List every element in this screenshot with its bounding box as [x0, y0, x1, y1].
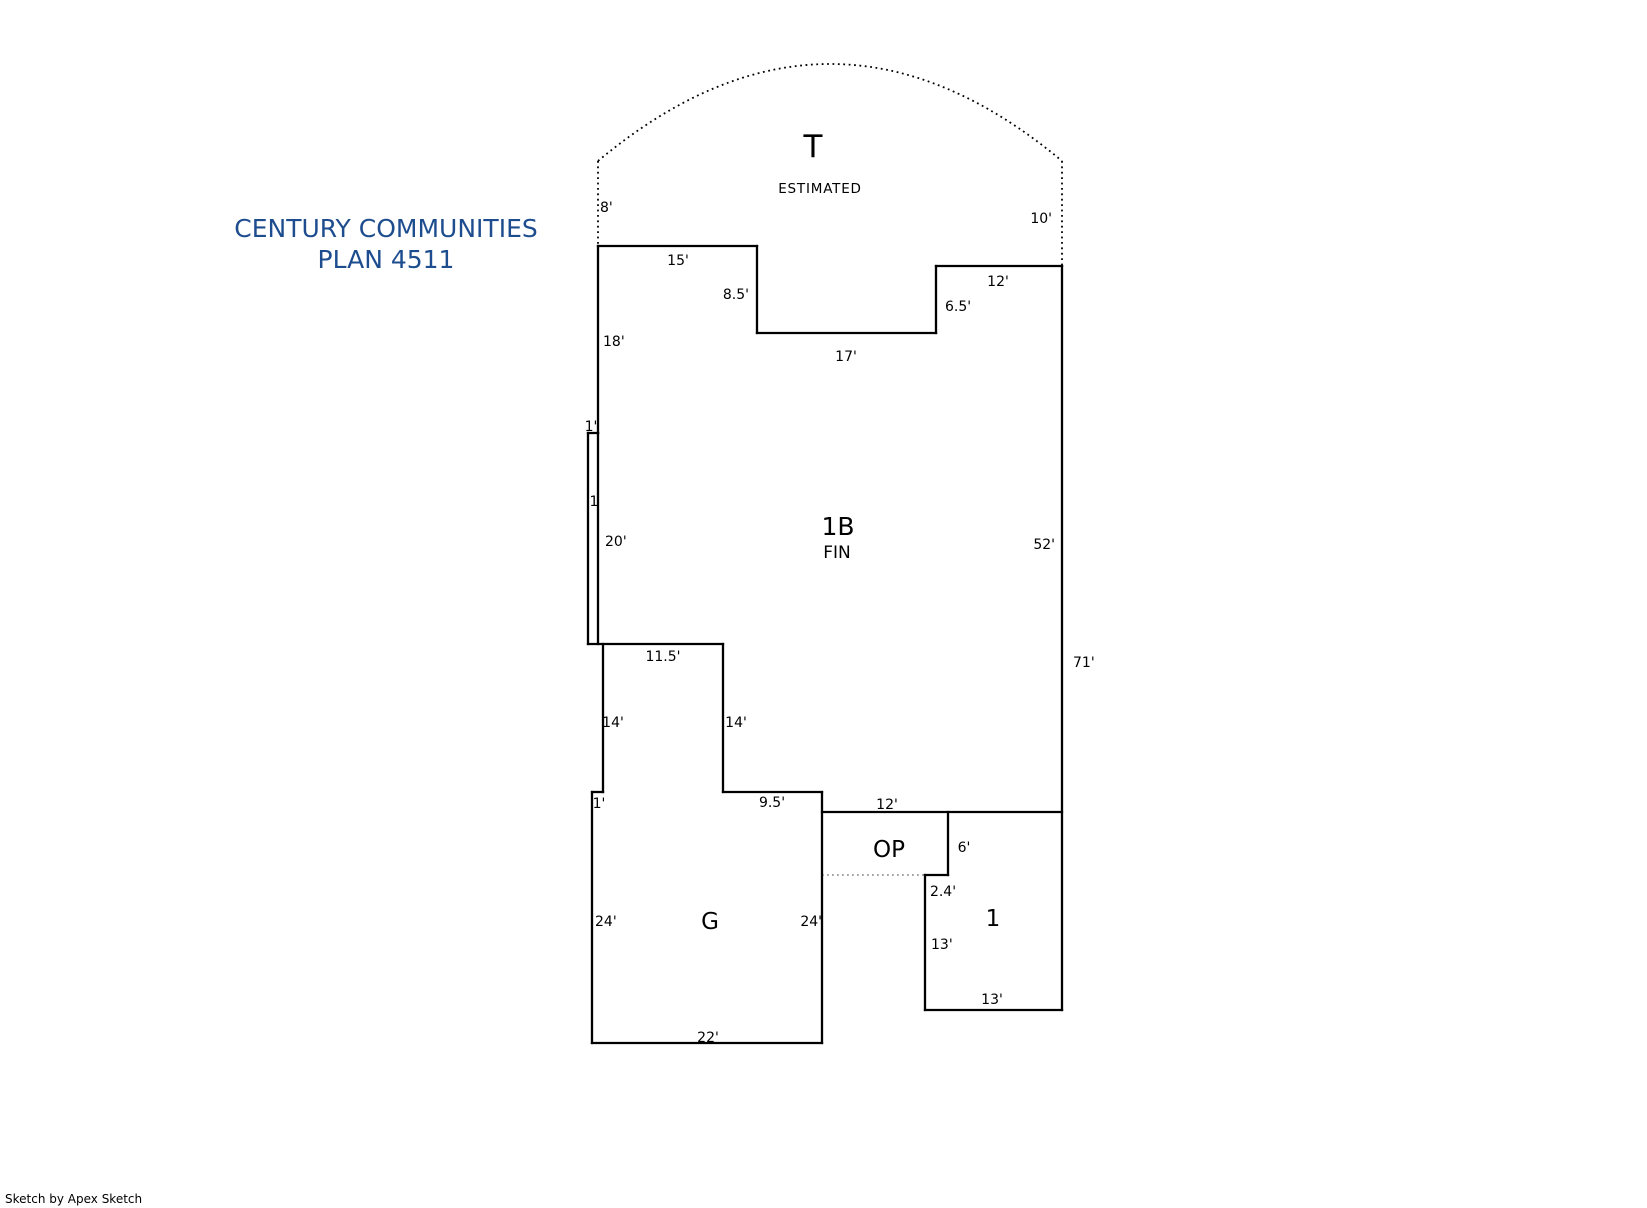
dimension-label: 8.5' — [723, 287, 749, 303]
dimension-label: 14' — [602, 715, 624, 731]
dimension-label: 15' — [667, 253, 689, 269]
dimension-label: 1 — [590, 494, 599, 510]
dimension-label: 13' — [931, 937, 953, 953]
dimension-label: 6' — [958, 840, 971, 856]
dimension-label: 13' — [981, 992, 1003, 1008]
dimension-label: 24' — [800, 914, 822, 930]
sketch-page: TESTIMATED1BFINOP1G8'10'15'8.5'12'6.5'17… — [0, 0, 1647, 1208]
dimension-label: 2.4' — [930, 884, 956, 900]
plan-title: CENTURY COMMUNITIES PLAN 4511 — [200, 213, 572, 275]
area-1b-label: 1B — [821, 512, 854, 541]
dimension-label: 6.5' — [945, 299, 971, 315]
dimension-label: 24' — [595, 914, 617, 930]
dimension-label: 9.5' — [759, 795, 785, 811]
dimension-label: 20' — [605, 534, 627, 550]
estimated-arc-dotted-line — [598, 64, 1062, 161]
sketch-credit: Sketch by Apex Sketch — [5, 1192, 142, 1206]
dimension-label: 71' — [1073, 655, 1095, 671]
dimension-label: 18' — [603, 334, 625, 350]
dimension-label: 8' — [600, 200, 613, 216]
dimension-label: 52' — [1033, 537, 1055, 553]
dimension-label: 10' — [1030, 211, 1052, 227]
dimension-label: 1' — [593, 796, 606, 812]
area-g-label: G — [701, 909, 719, 935]
dimension-label: 22' — [697, 1030, 719, 1046]
dimension-label: 11.5' — [645, 649, 680, 665]
plan-title-line2: PLAN 4511 — [200, 244, 572, 275]
area-1b-fin-label: FIN — [823, 543, 851, 563]
area-op-label: OP — [873, 837, 905, 863]
estimated-area-t-label: T — [803, 129, 824, 165]
dimension-label: 12' — [987, 274, 1009, 290]
dimension-label: 14' — [725, 715, 747, 731]
area-1-label: 1 — [986, 906, 1001, 932]
estimated-note-label: ESTIMATED — [778, 181, 862, 197]
dimension-label: 12' — [876, 797, 898, 813]
plan-title-line1: CENTURY COMMUNITIES — [200, 213, 572, 244]
dimension-label: 17' — [835, 349, 857, 365]
floor-plan-svg: TESTIMATED1BFINOP1G8'10'15'8.5'12'6.5'17… — [0, 0, 1647, 1208]
dimension-label: 1' — [585, 419, 598, 435]
